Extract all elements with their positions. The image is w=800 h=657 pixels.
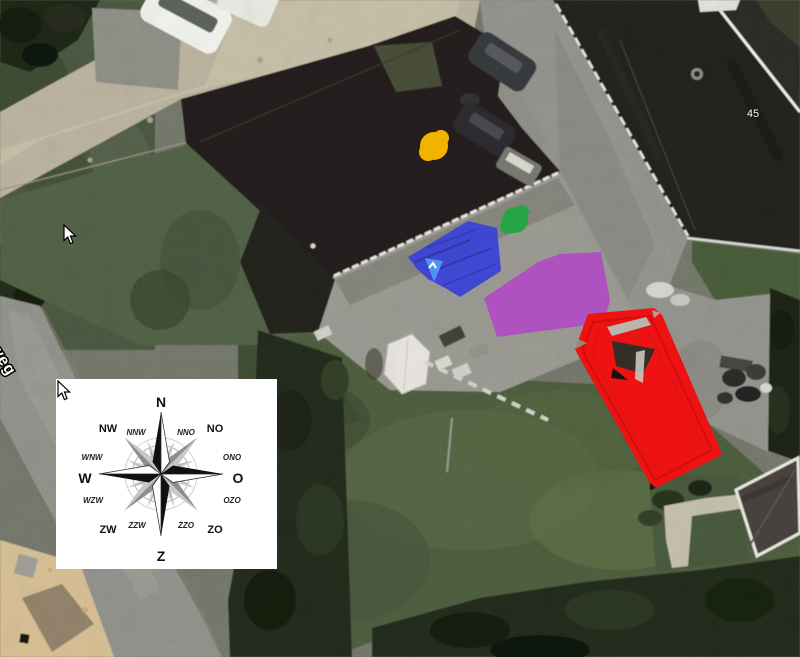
compass-label-zzw: ZZW xyxy=(127,521,147,530)
compass-label-nnw: NNW xyxy=(126,428,147,437)
compass-label-zo: ZO xyxy=(207,524,223,536)
compass-label-no: NO xyxy=(207,423,224,435)
compass-label-nw: NW xyxy=(99,423,118,435)
compass-label-o: O xyxy=(233,470,244,486)
compass-rose-image[interactable]: N NNO NO ONO O OZO ZO ZZO Z ZZW ZW WZW W… xyxy=(56,379,277,569)
house-number-label: 45 xyxy=(747,108,759,120)
compass-label-ozo: OZO xyxy=(223,496,241,505)
compass-label-z: Z xyxy=(157,548,166,564)
compass-label-zw: ZW xyxy=(99,524,117,536)
compass-label-zzo: ZZO xyxy=(177,521,195,530)
compass-label-w: W xyxy=(78,470,92,486)
annotated-aerial-map: 45 weg N NN xyxy=(0,0,800,657)
compass-label-nno: NNO xyxy=(177,428,196,437)
compass-label-wnw: WNW xyxy=(82,453,104,462)
compass-label-n: N xyxy=(156,394,166,410)
compass-label-ono: ONO xyxy=(223,453,242,462)
compass-label-wzw: WZW xyxy=(83,496,104,505)
